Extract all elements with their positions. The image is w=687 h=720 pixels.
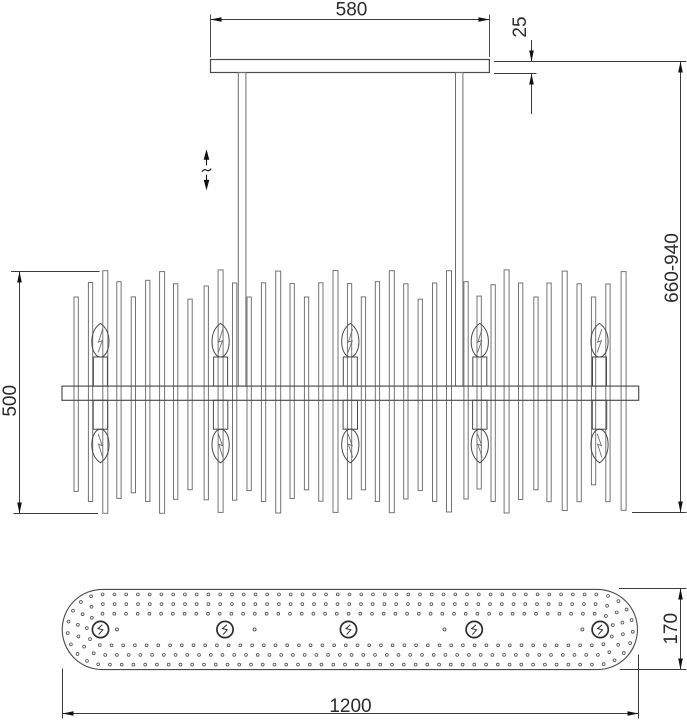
svg-text:1200: 1200 xyxy=(329,696,371,717)
svg-text:660-940: 660-940 xyxy=(662,233,683,303)
svg-text:170: 170 xyxy=(661,613,682,645)
svg-text:500: 500 xyxy=(0,385,21,417)
svg-text:25: 25 xyxy=(510,16,531,37)
svg-text:580: 580 xyxy=(336,0,368,21)
